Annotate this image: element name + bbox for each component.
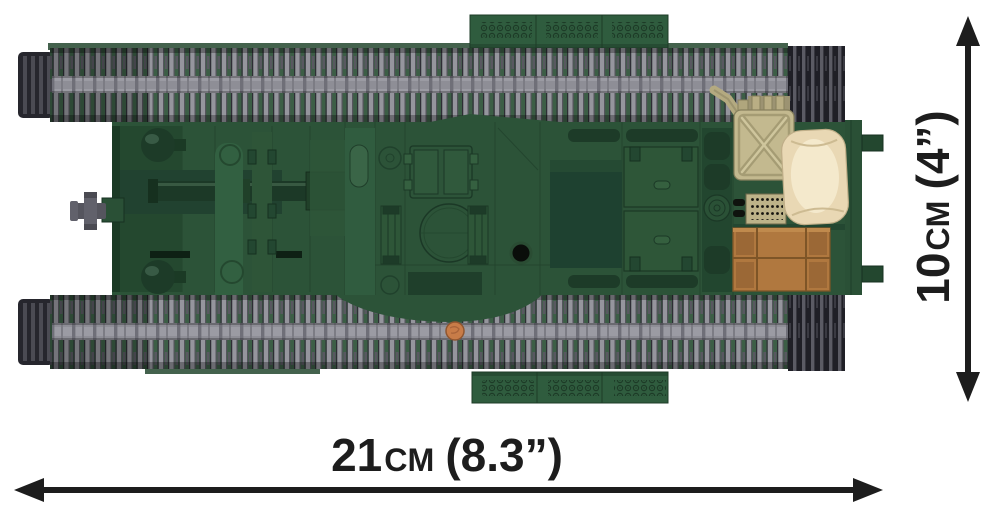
engine-hatch-bottom [624, 211, 698, 271]
mid-panel-edge [550, 160, 622, 172]
track-top [18, 46, 845, 125]
stud-plate-top [470, 15, 668, 48]
width-dimension-label: 21cm(8.3”) [0, 432, 894, 478]
ammo-crate [733, 228, 830, 291]
height-unit: cm [920, 201, 956, 251]
width-imperial: (8.3”) [445, 429, 563, 481]
height-dimension-label: 10cm(4”) [910, 110, 956, 303]
sandbag [781, 128, 850, 225]
periscope [511, 243, 531, 263]
engine-hatch-top [624, 147, 698, 207]
mid-dark-panel [550, 172, 622, 268]
product-image: 21cm(8.3”) 10cm(4”) [0, 0, 1000, 511]
width-value: 21 [331, 429, 382, 481]
orange-stud [446, 322, 464, 340]
stud-plate-bottom [472, 372, 668, 403]
logo-stud [379, 147, 401, 169]
crew-hatch [404, 146, 478, 198]
height-value: 10 [907, 253, 959, 304]
exhaust-stack [702, 128, 732, 292]
width-unit: cm [384, 442, 434, 478]
height-imperial: (4”) [907, 110, 959, 189]
